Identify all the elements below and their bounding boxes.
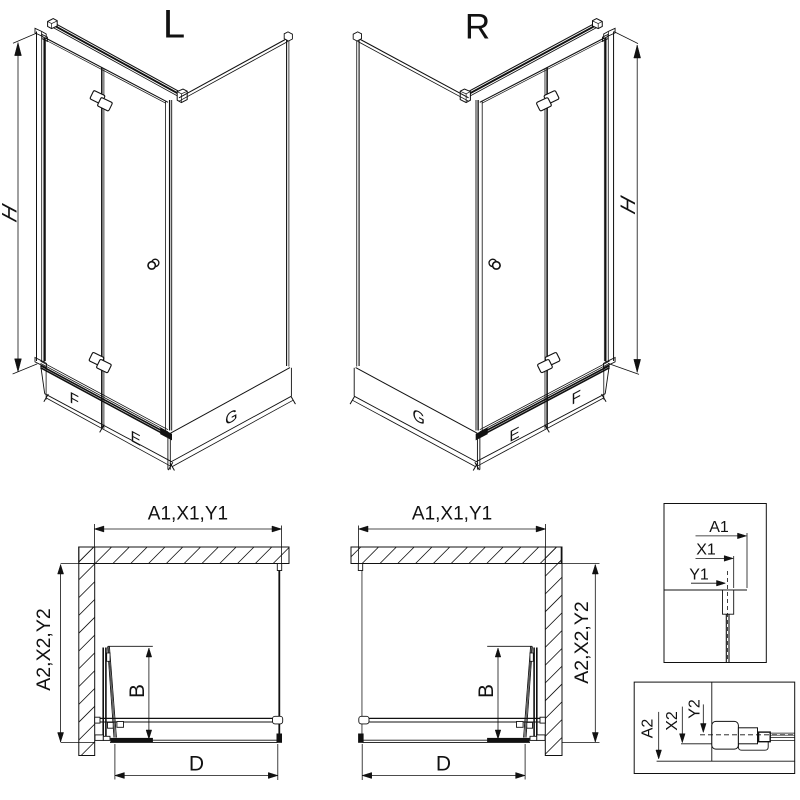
svg-text:Y2: Y2	[687, 699, 704, 719]
svg-text:L: L	[163, 3, 185, 47]
svg-text:D: D	[436, 753, 451, 776]
svg-text:B: B	[475, 684, 498, 698]
svg-text:A2: A2	[640, 719, 657, 739]
svg-text:A2,X2,Y2: A2,X2,Y2	[33, 608, 55, 690]
svg-text:A1: A1	[709, 519, 729, 536]
svg-text:A1,X1,Y1: A1,X1,Y1	[412, 504, 492, 525]
svg-text:A1,X1,Y1: A1,X1,Y1	[148, 504, 228, 525]
svg-text:B: B	[126, 684, 149, 698]
svg-text:A2,X2,Y2: A2,X2,Y2	[571, 601, 593, 683]
svg-text:X1: X1	[696, 542, 716, 559]
svg-text:R: R	[465, 8, 490, 47]
svg-text:D: D	[189, 753, 204, 776]
svg-text:X2: X2	[664, 711, 681, 731]
svg-text:Y1: Y1	[689, 567, 709, 584]
